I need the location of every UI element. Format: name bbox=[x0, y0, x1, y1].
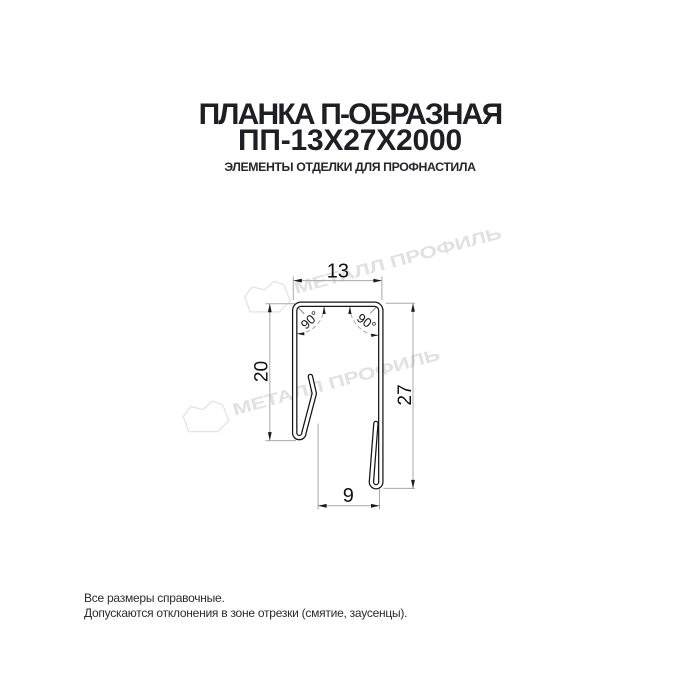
svg-text:9: 9 bbox=[343, 485, 354, 507]
svg-text:20: 20 bbox=[251, 361, 272, 382]
svg-text:27: 27 bbox=[395, 384, 416, 405]
svg-text:МЕТАЛЛ ПРОФИЛЬ: МЕТАЛЛ ПРОФИЛЬ bbox=[292, 224, 503, 298]
svg-text:13: 13 bbox=[327, 261, 349, 283]
svg-text:90°: 90° bbox=[354, 310, 379, 334]
